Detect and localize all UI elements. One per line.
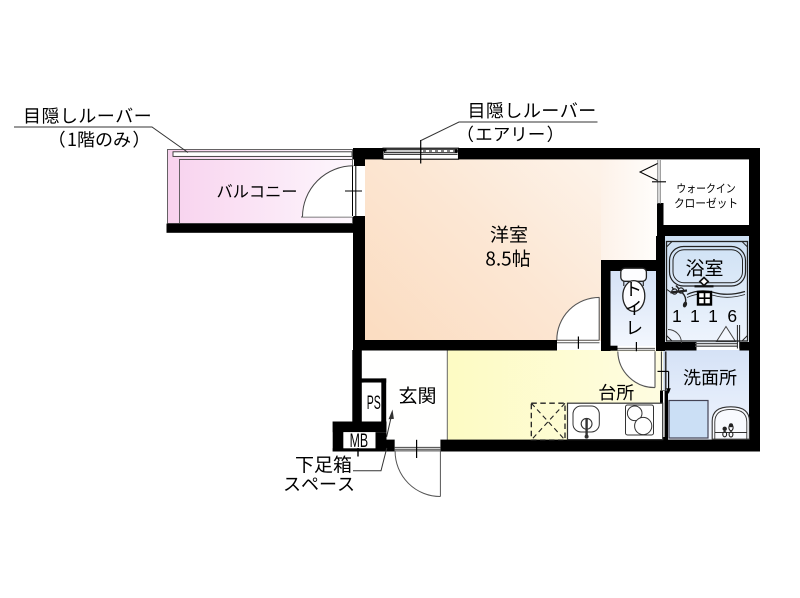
svg-text:MB: MB bbox=[350, 431, 369, 452]
svg-text:1116: 1116 bbox=[672, 306, 747, 326]
svg-text:PS: PS bbox=[367, 393, 381, 414]
